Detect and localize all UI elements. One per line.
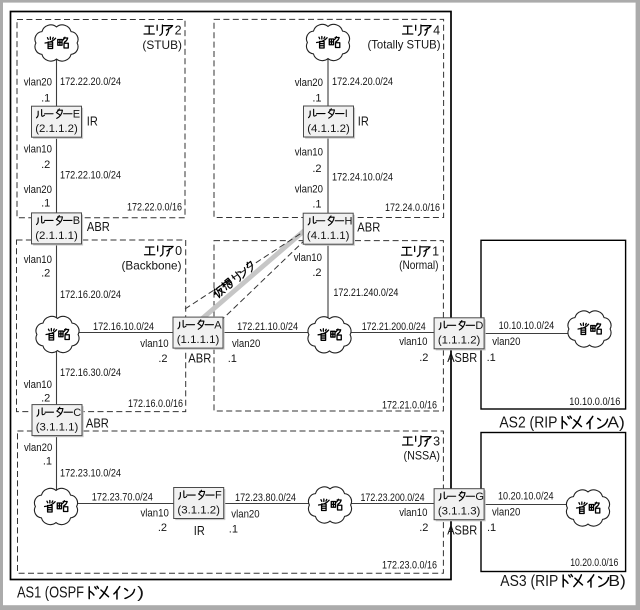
svg-text:10.20.10.0/24: 10.20.10.0/24: [498, 490, 554, 502]
svg-text:.2: .2: [419, 352, 428, 364]
svg-text:vlan10: vlan10: [399, 507, 427, 519]
svg-text:vlan10: vlan10: [140, 338, 168, 350]
svg-text:.2: .2: [41, 159, 50, 171]
svg-text:E: E: [73, 108, 80, 120]
svg-text:(1.1.1.1): (1.1.1.1): [177, 334, 220, 346]
svg-text:(4.1.1.2): (4.1.1.2): [307, 123, 350, 135]
svg-text:172.16.0.0/16: 172.16.0.0/16: [128, 398, 183, 410]
svg-text:172.16.10.0/24: 172.16.10.0/24: [93, 321, 154, 333]
svg-text:vlan10: vlan10: [295, 146, 323, 158]
svg-text:10.10.0.0/16: 10.10.0.0/16: [569, 396, 620, 408]
svg-text:ASBR: ASBR: [447, 522, 477, 537]
svg-text:.2: .2: [312, 267, 321, 279]
svg-text:172.23.0.0/16: 172.23.0.0/16: [382, 560, 437, 572]
svg-text:vlan20: vlan20: [295, 77, 323, 89]
svg-text:.2: .2: [41, 393, 50, 405]
svg-text:vlan10: vlan10: [24, 144, 52, 156]
svg-text:vlan20: vlan20: [24, 442, 52, 454]
svg-text:172.21.200.0/24: 172.21.200.0/24: [362, 321, 426, 333]
svg-text:B): B): [608, 573, 625, 590]
svg-text:vlan10: vlan10: [294, 252, 322, 264]
svg-text:(STUB): (STUB): [142, 38, 182, 52]
svg-text:172.23.10.0/24: 172.23.10.0/24: [60, 467, 121, 479]
svg-text:vlan10: vlan10: [24, 254, 52, 266]
svg-text:IR: IR: [87, 114, 98, 129]
svg-text:vlan10: vlan10: [24, 379, 52, 391]
svg-text:G: G: [475, 491, 484, 503]
svg-text:(3.1.1.3): (3.1.1.3): [438, 506, 481, 518]
svg-text:.1: .1: [43, 456, 52, 468]
svg-text:172.23.80.0/24: 172.23.80.0/24: [235, 492, 296, 504]
svg-text:H: H: [345, 215, 353, 227]
svg-text:(NSSA): (NSSA): [404, 449, 441, 463]
svg-text:172.22.10.0/24: 172.22.10.0/24: [60, 170, 121, 182]
svg-text:172.24.20.0/24: 172.24.20.0/24: [332, 76, 393, 88]
svg-text:.1: .1: [228, 353, 237, 365]
svg-text:IR: IR: [194, 523, 205, 538]
svg-text:2: 2: [175, 23, 182, 37]
svg-text:(1.1.1.2): (1.1.1.2): [438, 335, 481, 347]
svg-text:I: I: [345, 108, 348, 120]
svg-text:172.22.0.0/16: 172.22.0.0/16: [127, 202, 182, 214]
svg-text:ABR: ABR: [357, 220, 380, 235]
svg-text:10.20.0.0/16: 10.20.0.0/16: [570, 557, 618, 569]
svg-text:172.16.30.0/24: 172.16.30.0/24: [60, 367, 121, 379]
svg-text:3: 3: [433, 434, 440, 448]
svg-text:172.16.20.0/24: 172.16.20.0/24: [60, 289, 121, 301]
svg-text:(2.1.1.1): (2.1.1.1): [35, 230, 78, 242]
svg-text:.2: .2: [419, 522, 428, 534]
svg-text:vlan20: vlan20: [492, 336, 520, 348]
svg-text:.1: .1: [312, 93, 321, 105]
svg-text:vlan20: vlan20: [232, 338, 260, 350]
svg-text:.2: .2: [158, 353, 167, 365]
svg-text:172.22.20.0/24: 172.22.20.0/24: [60, 76, 121, 88]
svg-text:.1: .1: [312, 199, 321, 211]
svg-text:10.10.10.0/24: 10.10.10.0/24: [499, 320, 555, 332]
svg-text:D: D: [475, 320, 483, 332]
svg-text:AS3 (RIP: AS3 (RIP: [500, 573, 558, 590]
svg-text:A): A): [607, 414, 624, 431]
svg-text:.2: .2: [312, 163, 321, 175]
svg-text:.1: .1: [487, 352, 496, 364]
svg-text:172.21.0.0/16: 172.21.0.0/16: [382, 399, 437, 411]
svg-text:vlan10: vlan10: [399, 336, 427, 348]
svg-text:(Backbone): (Backbone): [122, 259, 182, 273]
svg-text:B: B: [73, 215, 80, 227]
svg-text:172.23.70.0/24: 172.23.70.0/24: [92, 492, 153, 504]
svg-text:ABR: ABR: [87, 219, 110, 234]
svg-text:(Totally STUB): (Totally STUB): [368, 38, 441, 52]
svg-text:ASBR: ASBR: [447, 350, 477, 365]
svg-text:vlan20: vlan20: [295, 184, 323, 196]
svg-text:F: F: [215, 490, 222, 502]
svg-text:(3.1.1.1): (3.1.1.1): [36, 422, 79, 434]
svg-text:vlan20: vlan20: [24, 184, 52, 196]
svg-text:vlan20: vlan20: [24, 77, 52, 89]
svg-text:AS2 (RIP: AS2 (RIP: [499, 414, 557, 431]
svg-text:4: 4: [433, 23, 440, 37]
svg-text:AS1 (OSPF: AS1 (OSPF: [17, 585, 84, 602]
svg-text:C: C: [73, 407, 81, 419]
svg-text:.1: .1: [41, 92, 50, 104]
svg-text:1: 1: [432, 245, 439, 259]
svg-text:ABR: ABR: [86, 416, 109, 431]
svg-text:): ): [137, 585, 144, 602]
svg-text:172.24.10.0/24: 172.24.10.0/24: [332, 172, 393, 184]
svg-text:vlan20: vlan20: [231, 508, 259, 520]
svg-text:(3.1.1.2): (3.1.1.2): [177, 504, 220, 516]
svg-text:(Normal): (Normal): [399, 258, 438, 272]
svg-text:IR: IR: [358, 114, 369, 129]
svg-text:(2.1.1.2): (2.1.1.2): [35, 123, 78, 135]
svg-text:.2: .2: [158, 522, 167, 534]
svg-text:172.21.10.0/24: 172.21.10.0/24: [237, 321, 298, 333]
svg-text:vlan10: vlan10: [141, 508, 169, 520]
svg-text:(4.1.1.1): (4.1.1.1): [307, 230, 350, 242]
svg-text:0: 0: [175, 244, 182, 258]
svg-text:172.21.240.0/24: 172.21.240.0/24: [333, 287, 398, 299]
svg-text:vlan20: vlan20: [492, 507, 520, 519]
svg-text:172.24.0.0/16: 172.24.0.0/16: [385, 202, 440, 214]
svg-text:.2: .2: [41, 268, 50, 280]
svg-text:.1: .1: [41, 198, 50, 210]
svg-text:172.23.200.0/24: 172.23.200.0/24: [361, 492, 425, 504]
svg-text:ABR: ABR: [188, 351, 211, 366]
svg-text:.1: .1: [487, 522, 496, 534]
svg-text:.1: .1: [229, 523, 238, 535]
svg-text:A: A: [214, 319, 222, 331]
